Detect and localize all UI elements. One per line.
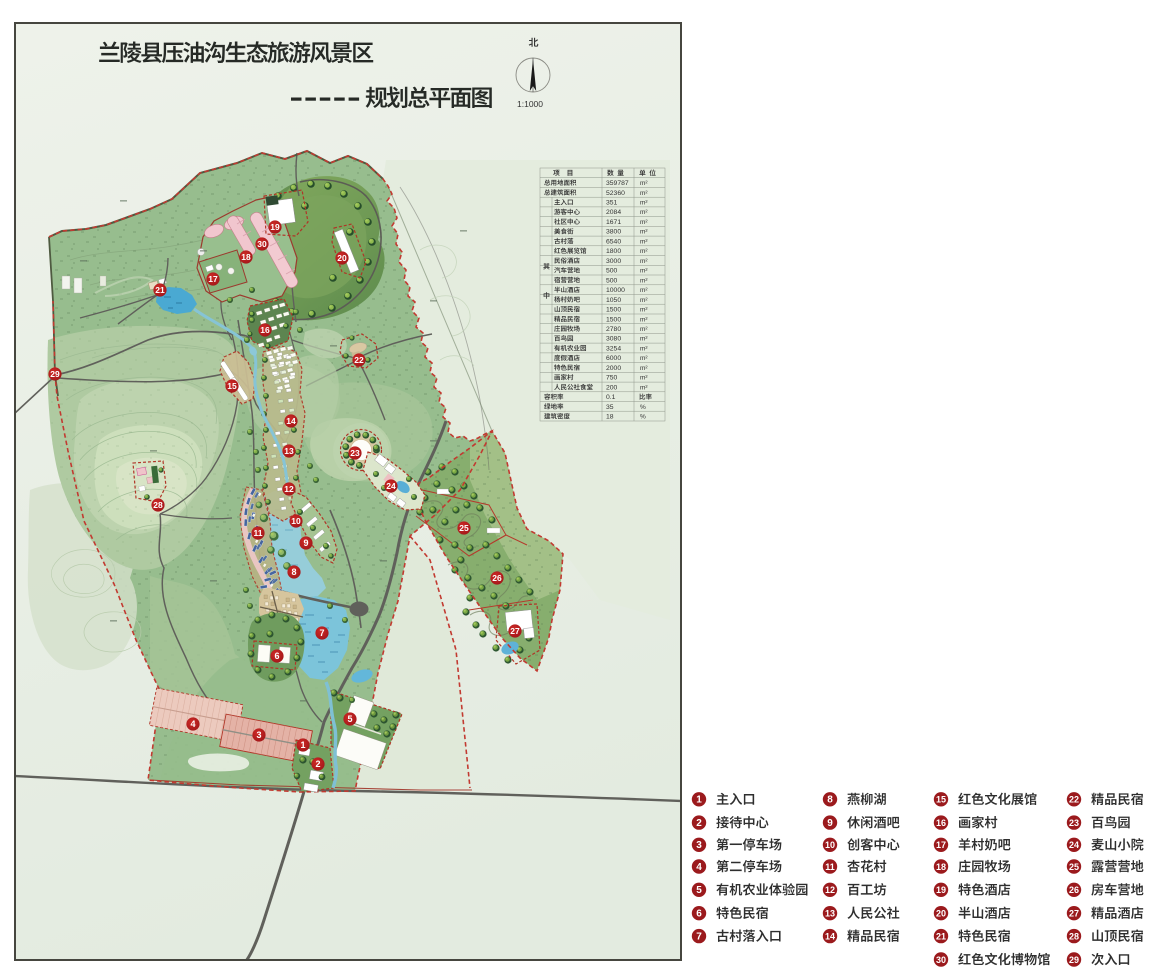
svg-text:6540: 6540	[606, 238, 621, 245]
svg-text:22: 22	[354, 355, 364, 365]
svg-text:500: 500	[606, 277, 618, 284]
svg-text:2780: 2780	[606, 326, 621, 333]
svg-text:16: 16	[936, 818, 946, 828]
svg-text:3: 3	[696, 840, 702, 851]
svg-text:20: 20	[936, 909, 946, 919]
svg-text:1: 1	[696, 795, 702, 806]
svg-text:27: 27	[510, 626, 520, 636]
svg-text:9: 9	[303, 538, 308, 548]
svg-text:23: 23	[350, 448, 360, 458]
svg-text:2: 2	[696, 818, 702, 829]
svg-text:17: 17	[208, 274, 218, 284]
svg-text:16: 16	[260, 325, 270, 335]
svg-text:m²: m²	[640, 336, 648, 343]
svg-text:35: 35	[606, 404, 614, 411]
svg-text:6: 6	[696, 909, 702, 920]
svg-text:25: 25	[459, 523, 469, 533]
svg-text:29: 29	[1069, 955, 1079, 965]
svg-text:%: %	[640, 404, 646, 411]
svg-text:7: 7	[319, 628, 324, 638]
svg-text:m²: m²	[640, 375, 648, 382]
svg-text:5: 5	[696, 885, 702, 896]
svg-text:%: %	[640, 414, 646, 421]
svg-text:19: 19	[936, 885, 946, 895]
svg-text:2000: 2000	[606, 365, 621, 372]
svg-text:5: 5	[347, 714, 352, 724]
svg-text:359787: 359787	[606, 180, 629, 187]
svg-text:28: 28	[1069, 931, 1079, 941]
svg-text:20: 20	[337, 253, 347, 263]
svg-text:15: 15	[936, 795, 946, 805]
svg-text:12: 12	[284, 484, 294, 494]
svg-text:3080: 3080	[606, 336, 621, 343]
svg-text:22: 22	[1069, 795, 1079, 805]
svg-text:m²: m²	[640, 209, 648, 216]
svg-text:1:1000: 1:1000	[517, 99, 543, 109]
svg-text:m²: m²	[640, 355, 648, 362]
svg-text:17: 17	[936, 840, 946, 850]
svg-text:19: 19	[270, 222, 280, 232]
svg-text:14: 14	[825, 931, 835, 941]
svg-text:1050: 1050	[606, 297, 621, 304]
svg-text:500: 500	[606, 268, 618, 275]
svg-text:9: 9	[827, 818, 833, 829]
svg-text:8: 8	[291, 567, 296, 577]
svg-text:12: 12	[825, 885, 835, 895]
svg-text:24: 24	[386, 481, 396, 491]
svg-text:3800: 3800	[606, 229, 621, 236]
svg-text:14: 14	[286, 416, 296, 426]
svg-text:m²: m²	[640, 180, 648, 187]
svg-text:10: 10	[825, 840, 835, 850]
svg-text:2084: 2084	[606, 209, 621, 216]
svg-text:28: 28	[153, 500, 163, 510]
svg-text:3: 3	[256, 730, 261, 740]
svg-text:4: 4	[190, 719, 195, 729]
svg-text:m²: m²	[640, 238, 648, 245]
svg-text:750: 750	[606, 375, 618, 382]
svg-text:11: 11	[254, 528, 263, 538]
svg-text:21: 21	[155, 285, 165, 295]
svg-text:52360: 52360	[606, 190, 625, 197]
svg-text:2: 2	[315, 759, 320, 769]
svg-text:1500: 1500	[606, 316, 621, 323]
svg-text:3254: 3254	[606, 345, 621, 352]
svg-text:29: 29	[50, 369, 60, 379]
svg-text:23: 23	[1069, 818, 1079, 828]
svg-text:26: 26	[492, 573, 502, 583]
svg-text:m²: m²	[640, 287, 648, 294]
svg-text:m²: m²	[640, 297, 648, 304]
svg-text:24: 24	[1069, 840, 1079, 850]
svg-text:21: 21	[936, 931, 946, 941]
svg-text:18: 18	[606, 414, 614, 421]
svg-text:m²: m²	[640, 229, 648, 236]
svg-text:11: 11	[825, 862, 835, 872]
svg-text:200: 200	[606, 384, 618, 391]
svg-text:m²: m²	[640, 277, 648, 284]
svg-text:m²: m²	[640, 365, 648, 372]
svg-text:m²: m²	[640, 316, 648, 323]
svg-text:m²: m²	[640, 384, 648, 391]
svg-text:m²: m²	[640, 190, 648, 197]
svg-text:6000: 6000	[606, 355, 621, 362]
svg-text:m²: m²	[640, 345, 648, 352]
svg-text:1: 1	[300, 740, 305, 750]
svg-text:351: 351	[606, 200, 618, 207]
svg-text:27: 27	[1069, 909, 1079, 919]
svg-text:m²: m²	[640, 258, 648, 265]
svg-text:m²: m²	[640, 200, 648, 207]
svg-text:7: 7	[696, 931, 702, 942]
svg-text:13: 13	[825, 909, 835, 919]
svg-text:0.1: 0.1	[606, 394, 616, 401]
svg-text:3000: 3000	[606, 258, 621, 265]
svg-text:8: 8	[827, 795, 833, 806]
svg-text:18: 18	[936, 862, 946, 872]
svg-text:m²: m²	[640, 307, 648, 314]
svg-text:1671: 1671	[606, 219, 621, 226]
svg-text:26: 26	[1069, 885, 1079, 895]
svg-text:30: 30	[936, 955, 946, 965]
svg-text:18: 18	[241, 252, 251, 262]
svg-text:10000: 10000	[606, 287, 625, 294]
svg-text:1800: 1800	[606, 248, 621, 255]
svg-text:m²: m²	[640, 219, 648, 226]
svg-text:m²: m²	[640, 326, 648, 333]
svg-text:15: 15	[227, 381, 237, 391]
svg-text:4: 4	[696, 862, 702, 873]
svg-text:6: 6	[274, 651, 279, 661]
svg-text:25: 25	[1069, 862, 1079, 872]
svg-text:1500: 1500	[606, 307, 621, 314]
svg-text:13: 13	[284, 446, 294, 456]
svg-text:m²: m²	[640, 248, 648, 255]
svg-text:30: 30	[257, 239, 267, 249]
svg-text:10: 10	[291, 516, 301, 526]
svg-text:m²: m²	[640, 268, 648, 275]
